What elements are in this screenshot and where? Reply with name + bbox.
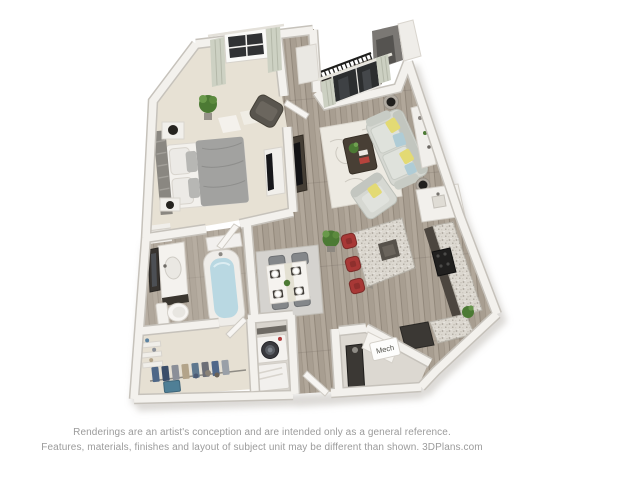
glass-reflection bbox=[338, 76, 350, 100]
closet-item bbox=[205, 370, 211, 376]
disclaimer: Renderings are an artist's conception an… bbox=[30, 426, 494, 455]
bed-accent-pillow bbox=[185, 151, 198, 173]
burner bbox=[443, 252, 446, 255]
bed-accent-pillow bbox=[188, 178, 201, 199]
table-lamp bbox=[168, 125, 178, 135]
disclaimer-line-1: Renderings are an artist's conception an… bbox=[30, 426, 494, 441]
closet-item bbox=[194, 374, 199, 379]
closet-item bbox=[215, 373, 220, 378]
burner bbox=[436, 254, 439, 257]
burner bbox=[446, 262, 449, 265]
faucet bbox=[163, 264, 166, 267]
faucet bbox=[436, 192, 439, 195]
place-setting bbox=[291, 266, 302, 275]
kitchen-sink bbox=[432, 195, 446, 208]
storage-bin bbox=[164, 380, 181, 393]
floor-plan-rendering: Mech bbox=[0, 0, 640, 480]
place-setting bbox=[294, 286, 305, 295]
bed-duvet bbox=[195, 137, 249, 207]
floor-lamp bbox=[387, 98, 396, 107]
water-heater-cap bbox=[352, 347, 358, 353]
table-lamp bbox=[166, 201, 174, 209]
place-setting bbox=[270, 269, 281, 278]
bathtub bbox=[202, 248, 246, 327]
curtain bbox=[210, 37, 226, 87]
centerpiece bbox=[284, 280, 290, 286]
sideboard-decor bbox=[427, 145, 431, 149]
burner bbox=[439, 264, 442, 267]
disclaimer-line-2: Features, materials, finishes and layout… bbox=[30, 441, 494, 456]
curtain bbox=[266, 25, 282, 73]
place-setting bbox=[273, 289, 284, 298]
screenshot-canvas: Mech Renderings are an artist's concepti… bbox=[0, 0, 640, 480]
mirror-glint bbox=[151, 253, 157, 287]
balcony-wall-left bbox=[296, 44, 319, 84]
